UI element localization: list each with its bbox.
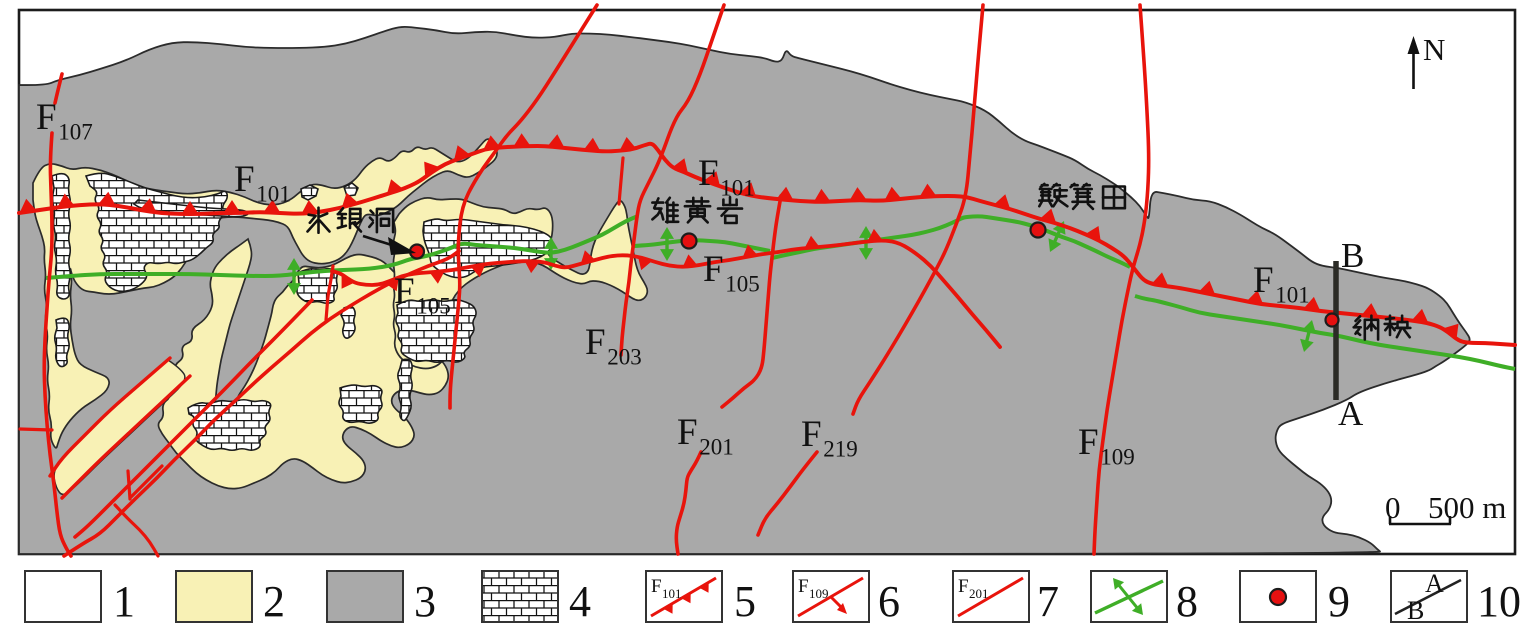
svg-text:5: 5 <box>734 577 756 626</box>
svg-text:F: F <box>703 249 724 290</box>
svg-text:107: 107 <box>58 119 92 144</box>
svg-text:201: 201 <box>969 586 989 601</box>
svg-text:500 m: 500 m <box>1428 490 1506 525</box>
svg-text:0: 0 <box>1385 490 1401 525</box>
svg-text:B: B <box>1341 236 1364 275</box>
svg-text:F: F <box>1253 260 1274 301</box>
svg-text:109: 109 <box>809 586 829 601</box>
svg-text:6: 6 <box>878 577 900 626</box>
svg-text:F: F <box>36 97 57 138</box>
svg-text:4: 4 <box>569 577 591 626</box>
svg-text:10: 10 <box>1477 577 1521 626</box>
svg-text:F: F <box>698 153 719 194</box>
svg-text:101: 101 <box>662 586 682 601</box>
svg-text:109: 109 <box>1100 444 1135 469</box>
svg-text:F: F <box>394 271 415 312</box>
svg-text:A: A <box>1425 569 1444 598</box>
svg-text:105: 105 <box>416 293 451 318</box>
svg-text:N: N <box>1423 32 1445 67</box>
svg-text:2: 2 <box>263 577 285 626</box>
svg-text:F: F <box>677 412 698 453</box>
svg-text:F: F <box>798 576 809 597</box>
svg-text:9: 9 <box>1328 577 1350 626</box>
svg-text:7: 7 <box>1037 577 1059 626</box>
svg-text:B: B <box>1407 596 1424 625</box>
svg-text:101: 101 <box>720 175 755 200</box>
svg-text:A: A <box>1338 394 1364 433</box>
svg-text:F: F <box>801 414 822 455</box>
svg-text:F: F <box>585 322 606 363</box>
svg-text:1: 1 <box>113 577 135 626</box>
svg-text:101: 101 <box>1275 282 1310 307</box>
svg-text:201: 201 <box>699 434 734 459</box>
svg-text:101: 101 <box>256 181 291 206</box>
svg-text:F: F <box>234 159 255 200</box>
svg-text:105: 105 <box>725 271 760 296</box>
svg-text:F: F <box>958 576 969 597</box>
svg-text:F: F <box>651 576 662 597</box>
svg-text:3: 3 <box>414 577 436 626</box>
svg-text:8: 8 <box>1176 577 1198 626</box>
svg-text:203: 203 <box>607 344 642 369</box>
svg-text:219: 219 <box>823 436 858 461</box>
svg-text:F: F <box>1078 422 1099 463</box>
